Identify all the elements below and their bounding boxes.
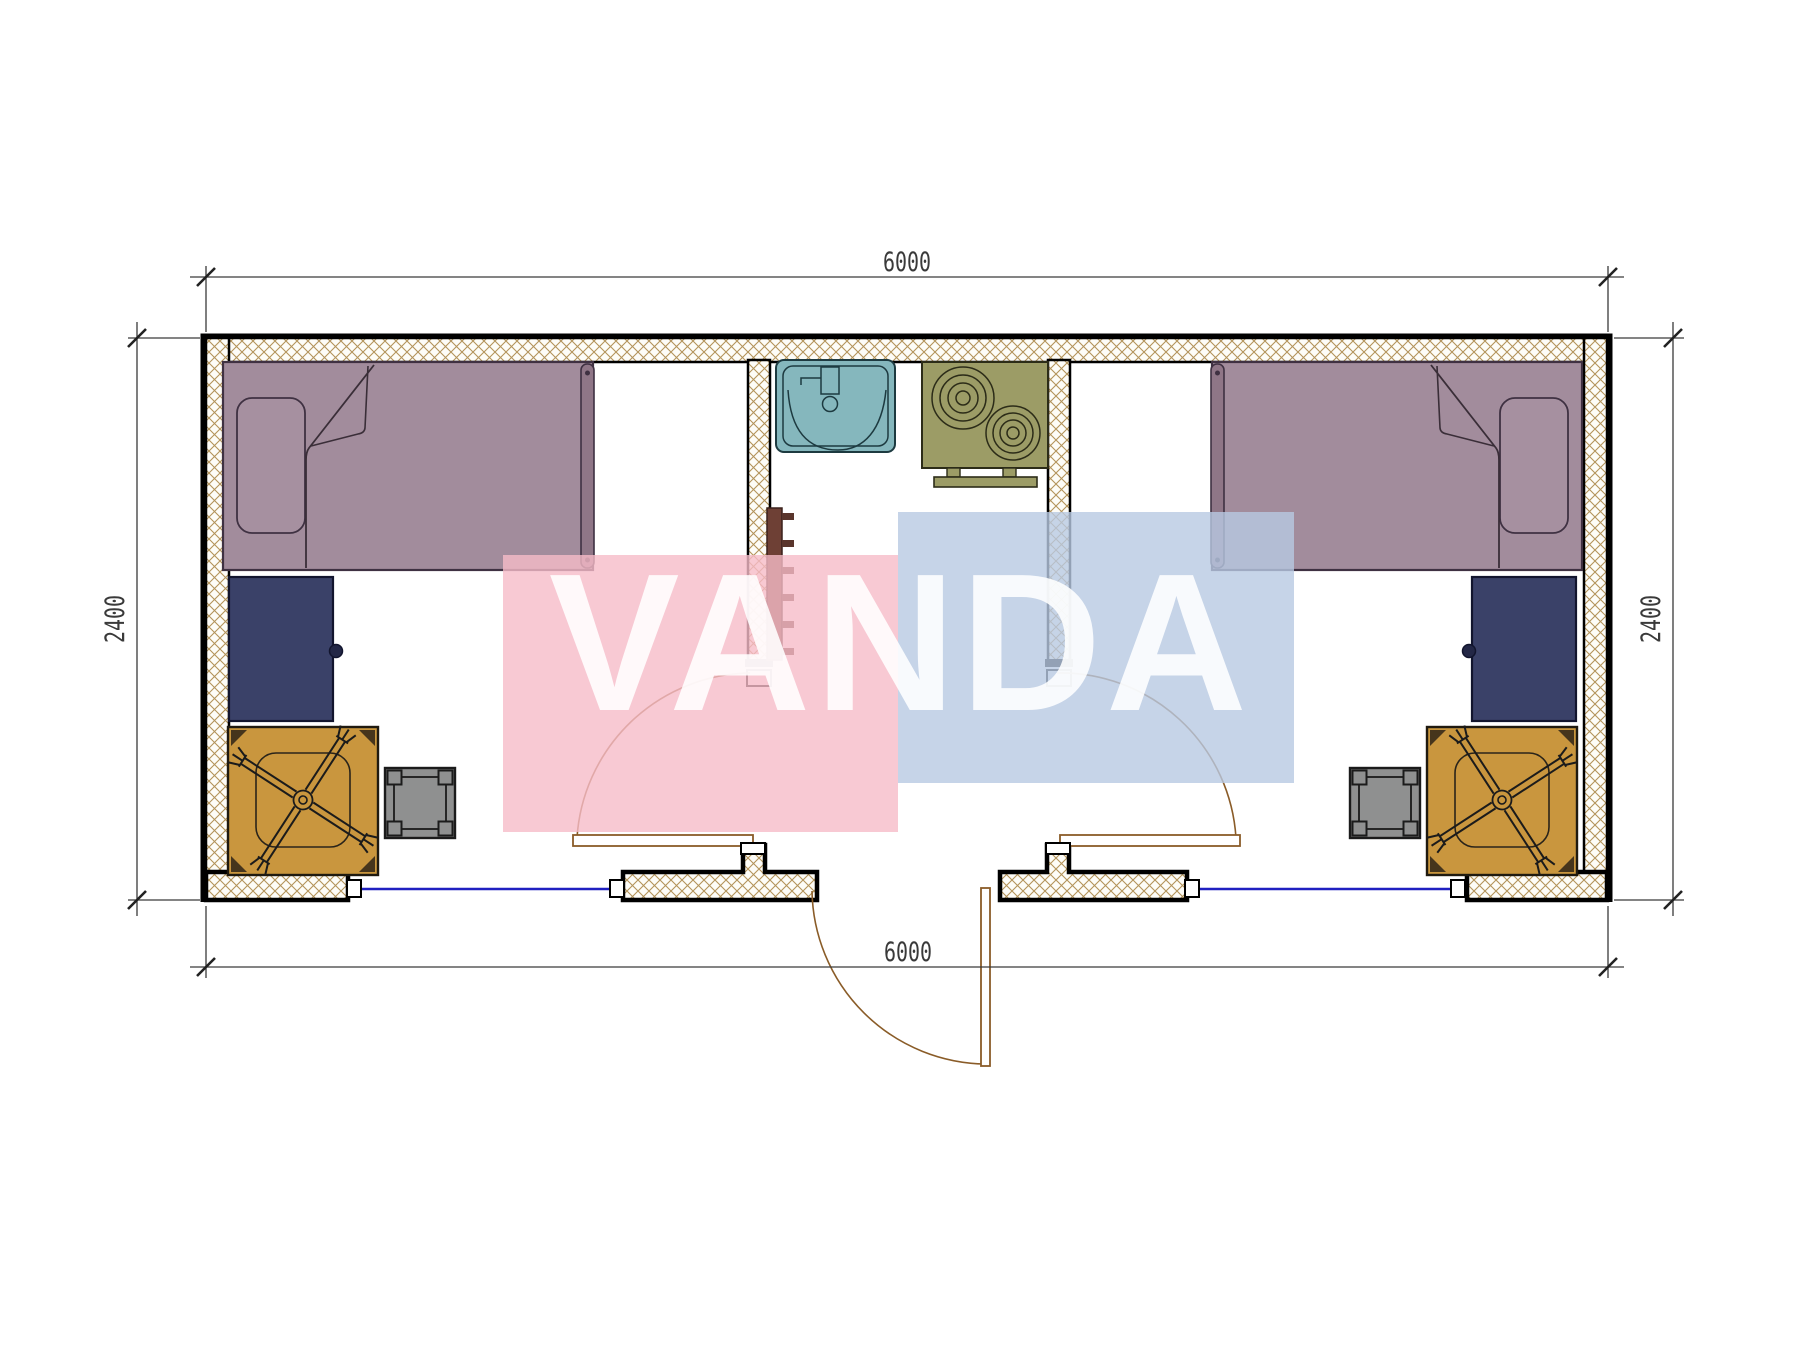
watermark-text: VANDA [549, 533, 1251, 752]
bottom-wall-left-center [623, 845, 817, 900]
faucet [821, 367, 839, 394]
dimension-bottom: 6000 [190, 906, 1624, 978]
bottom-wall-right-corner [1467, 872, 1607, 900]
dimension-left: 2400 [100, 322, 200, 916]
window-strips [347, 880, 1465, 897]
dim-height-left: 2400 [100, 595, 131, 643]
door-leaf-left [573, 835, 753, 846]
door-swing-entry [812, 891, 986, 1064]
top-wall [206, 338, 1607, 362]
floor-plan-canvas: 6000 6000 2400 2400 VANDA [0, 0, 1800, 1350]
cooktop-handle [934, 477, 1037, 487]
bottom-wall-right-center [1000, 845, 1187, 900]
door-leaf-entry [981, 888, 990, 1066]
right-wall [1584, 338, 1607, 900]
wash-basin [776, 360, 895, 452]
dim-width-top: 6000 [883, 247, 931, 278]
door-leaf-right [1060, 835, 1240, 846]
bottom-wall-left-corner [206, 872, 348, 900]
dimension-right: 2400 [1614, 322, 1684, 916]
dim-width-bottom: 6000 [884, 937, 932, 968]
dimension-top: 6000 [190, 247, 1624, 332]
two-burner-cooktop [922, 362, 1048, 487]
dim-height-right: 2400 [1636, 595, 1667, 643]
floor-plan-drawing: 6000 6000 2400 2400 VANDA [0, 0, 1800, 1350]
watermark: VANDA [503, 512, 1294, 832]
